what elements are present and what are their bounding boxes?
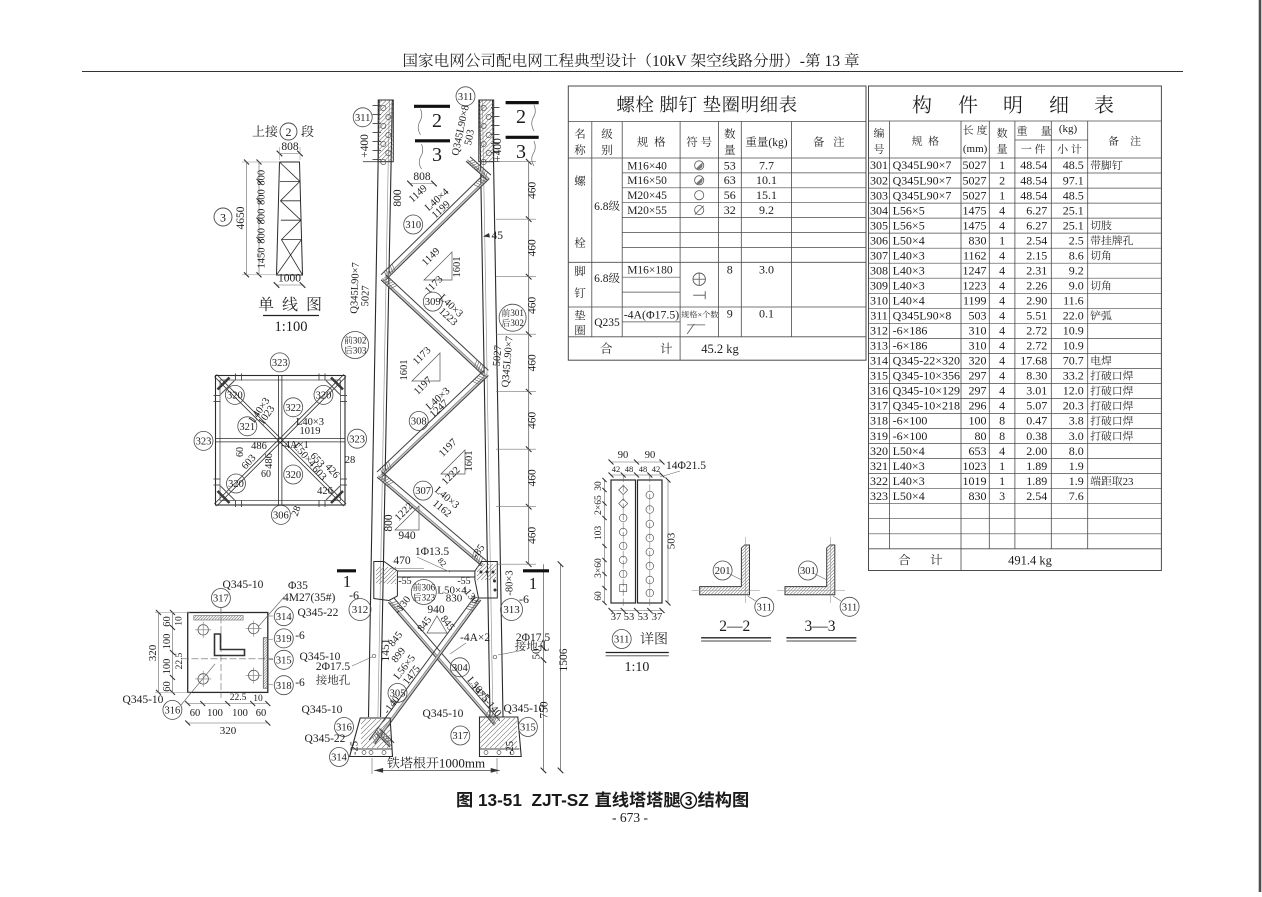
svg-text:11.6: 11.6 [1063,294,1084,308]
svg-text:311: 311 [842,602,857,613]
svg-text:6.27: 6.27 [1026,203,1047,217]
svg-text:53: 53 [638,612,649,623]
svg-text:28: 28 [345,455,356,466]
svg-text:8: 8 [999,429,1005,443]
svg-text:3.01: 3.01 [1026,384,1047,398]
svg-text:460: 460 [527,239,539,257]
svg-text:L40×3: L40×3 [893,279,925,293]
svg-text:1450: 1450 [257,248,268,269]
svg-text:323: 323 [272,358,288,369]
svg-text:318: 318 [870,414,888,428]
svg-text:322: 322 [870,474,888,488]
svg-text:3: 3 [999,489,1005,503]
svg-text:316: 316 [336,723,352,734]
svg-text:0.1: 0.1 [759,306,774,320]
svg-text:306: 306 [273,511,289,522]
svg-text:60: 60 [235,447,246,457]
svg-text:318: 318 [276,681,292,692]
svg-text:310: 310 [969,324,987,338]
svg-text:315: 315 [520,723,536,734]
svg-text:4: 4 [999,248,1005,262]
svg-text:830: 830 [446,593,463,605]
svg-text:302: 302 [510,318,524,328]
svg-text:56: 56 [724,188,736,202]
svg-text:460: 460 [527,527,539,545]
svg-text:303: 303 [353,346,367,356]
svg-text:9.2: 9.2 [759,203,774,217]
svg-text:1: 1 [999,459,1005,473]
svg-text:70.7: 70.7 [1063,354,1084,368]
svg-text:1.89: 1.89 [1026,459,1047,473]
svg-text:2—2: 2—2 [719,618,750,635]
svg-text:3—3: 3—3 [805,618,836,635]
svg-text:Q345-10: Q345-10 [300,651,341,663]
svg-text:9.0: 9.0 [1069,279,1084,293]
svg-text:32: 32 [724,203,736,217]
svg-text:L40×3: L40×3 [893,474,925,488]
svg-text:3: 3 [516,141,526,163]
svg-text:13-51 ZJT-SZ: 13-51 ZJT-SZ [473,790,593,810]
svg-text:310: 310 [405,220,421,231]
svg-text:4: 4 [999,203,1005,217]
svg-text:×: × [698,311,703,320]
svg-text:311: 311 [870,309,888,323]
svg-text:314: 314 [331,753,348,764]
svg-text:-: - [800,53,805,70]
svg-text:(kg): (kg) [768,137,787,149]
svg-text:830: 830 [969,233,987,247]
svg-text:60: 60 [162,681,173,692]
svg-text:320: 320 [870,444,888,458]
svg-text:48.5: 48.5 [1063,188,1084,202]
svg-text:1: 1 [999,233,1005,247]
svg-text:1475: 1475 [963,203,987,217]
svg-text:486: 486 [251,441,267,452]
svg-text:301: 301 [870,158,888,172]
svg-text:53: 53 [624,612,635,623]
svg-text:20.3: 20.3 [1063,399,1084,413]
svg-text:-6×186: -6×186 [893,339,928,353]
svg-text:9: 9 [727,306,733,320]
svg-text:Q345-22: Q345-22 [305,733,346,745]
svg-text:8: 8 [999,414,1005,428]
svg-text:307: 307 [870,248,888,262]
svg-text:460: 460 [527,182,539,200]
svg-text:-25: -25 [350,741,361,755]
svg-text:800: 800 [257,170,268,186]
svg-text:4: 4 [999,339,1005,353]
svg-text:10.1: 10.1 [756,173,777,187]
svg-text:322: 322 [285,403,301,414]
svg-text:10: 10 [175,616,185,626]
svg-text:4: 4 [999,279,1005,293]
svg-text:2.5: 2.5 [1069,233,1084,247]
svg-text:460: 460 [527,297,539,315]
svg-text:4: 4 [999,354,1005,368]
svg-text:2.54: 2.54 [1026,233,1047,247]
svg-text:460: 460 [527,412,539,430]
svg-text:301: 301 [800,566,816,577]
svg-text:6.8: 6.8 [594,201,609,213]
svg-text:1451: 1451 [380,638,392,661]
svg-text:1.89: 1.89 [1026,474,1047,488]
svg-text:4650: 4650 [235,206,247,229]
svg-text:4: 4 [999,263,1005,277]
svg-text:45.2 kg: 45.2 kg [701,342,739,356]
svg-text:313: 313 [870,339,888,353]
svg-text:312: 312 [870,324,888,338]
svg-text:1:10: 1:10 [625,660,650,675]
svg-text:Q345-10: Q345-10 [423,708,464,720]
svg-text:306: 306 [870,233,888,247]
svg-text:-6×100: -6×100 [893,429,928,443]
svg-text:1199: 1199 [963,294,987,308]
svg-text:304: 304 [870,203,888,217]
svg-text:320: 320 [220,725,237,737]
svg-text:Q345-10: Q345-10 [123,694,164,706]
svg-text:48.54: 48.54 [1020,158,1047,172]
svg-text:314: 314 [870,354,888,368]
svg-text:2: 2 [999,173,1005,187]
svg-text:1247: 1247 [963,263,987,277]
svg-text:309: 309 [870,279,888,293]
svg-text:426: 426 [317,486,333,497]
svg-text:Q345-10×356: Q345-10×356 [893,369,960,383]
svg-text:Q345L90×7: Q345L90×7 [893,158,952,172]
svg-text:8: 8 [727,263,733,277]
svg-text:306: 306 [422,583,436,593]
svg-text:2×65: 2×65 [594,495,604,515]
svg-text:3.0: 3.0 [759,263,774,277]
svg-text:460: 460 [527,469,539,487]
svg-text:312: 312 [352,604,369,616]
svg-text:10.9: 10.9 [1063,339,1084,353]
svg-text:317: 317 [213,594,229,605]
svg-text:9.2: 9.2 [1069,263,1084,277]
svg-text:296: 296 [969,399,987,413]
svg-text:491.4 kg: 491.4 kg [1008,553,1053,567]
svg-text:470: 470 [393,555,411,567]
svg-text:33.2: 33.2 [1063,369,1084,383]
svg-text:311: 311 [355,113,370,124]
svg-text:316: 316 [165,706,181,717]
svg-text:305: 305 [870,218,888,232]
svg-text:1162: 1162 [963,248,987,262]
svg-text:320: 320 [228,479,244,490]
svg-text:1.9: 1.9 [1069,474,1084,488]
svg-text:940: 940 [398,530,416,542]
svg-text:L40×4: L40×4 [893,294,925,308]
svg-text:503: 503 [666,532,678,549]
svg-text:317: 317 [870,399,888,413]
svg-text:0.38: 0.38 [1026,429,1047,443]
svg-text:53: 53 [724,158,736,172]
svg-text:1.9: 1.9 [1069,459,1084,473]
svg-text:302: 302 [870,173,888,187]
svg-text:23: 23 [1123,476,1134,488]
svg-text:10: 10 [253,694,263,704]
svg-text:17.68: 17.68 [1020,354,1047,368]
svg-text:297: 297 [969,384,987,398]
svg-text:100: 100 [162,659,173,675]
svg-text:2.90: 2.90 [1026,294,1047,308]
svg-text:Φ35: Φ35 [288,580,308,592]
svg-text:311: 311 [614,635,629,646]
svg-text:1:100: 1:100 [274,319,307,335]
svg-text:317: 317 [452,731,468,742]
svg-text:4: 4 [999,324,1005,338]
svg-text:319: 319 [870,429,888,443]
svg-text:15.1: 15.1 [756,188,777,202]
svg-text:L56×5: L56×5 [893,218,925,232]
svg-text:37: 37 [611,612,622,623]
svg-text:1475: 1475 [963,218,987,232]
svg-text:22.5: 22.5 [230,693,247,703]
svg-text:2.00: 2.00 [1026,444,1047,458]
svg-text:321: 321 [870,459,888,473]
svg-text:4: 4 [999,399,1005,413]
svg-text:-6: -6 [295,630,305,642]
svg-text:5.07: 5.07 [1026,399,1047,413]
svg-text:503: 503 [969,309,987,323]
svg-text:1601: 1601 [399,360,410,381]
svg-text:63: 63 [724,173,736,187]
svg-text:L56×5: L56×5 [893,203,925,217]
svg-text:60: 60 [162,616,173,627]
svg-text:3: 3 [220,211,226,225]
svg-text:48.54: 48.54 [1020,188,1047,202]
svg-text:48: 48 [625,464,634,474]
svg-text:486: 486 [264,453,275,469]
svg-text:3.8: 3.8 [1069,414,1084,428]
svg-text:3×60: 3×60 [594,558,604,578]
svg-text:2: 2 [516,106,526,128]
svg-text:308: 308 [870,263,888,277]
svg-text:M20×45: M20×45 [627,190,667,202]
svg-text:22.5: 22.5 [175,652,185,669]
svg-text:307: 307 [415,486,431,497]
svg-text:316: 316 [870,384,888,398]
svg-text:22.0: 22.0 [1063,309,1084,323]
svg-text:314: 314 [276,612,293,623]
svg-text:100: 100 [969,414,987,428]
svg-text:1: 1 [999,474,1005,488]
svg-text:100: 100 [207,708,223,719]
svg-text:830: 830 [969,489,987,503]
svg-text:4: 4 [999,384,1005,398]
svg-text:800: 800 [257,209,268,225]
svg-text:25.1: 25.1 [1063,218,1084,232]
svg-text:2.54: 2.54 [1026,489,1047,503]
svg-text:-55: -55 [398,576,411,587]
svg-text:-4A(Φ17.5): -4A(Φ17.5) [624,308,680,322]
svg-text:Q235: Q235 [594,317,620,329]
svg-text:7.6: 7.6 [1069,489,1084,503]
svg-text:4: 4 [999,369,1005,383]
svg-text:4: 4 [999,444,1005,458]
svg-text:297: 297 [969,369,987,383]
svg-text:460: 460 [527,354,539,372]
svg-text:Q345L90×8: Q345L90×8 [893,309,952,323]
svg-text:12.0: 12.0 [1063,384,1084,398]
svg-text:8.30: 8.30 [1026,369,1047,383]
svg-text:2.26: 2.26 [1026,279,1047,293]
svg-text:313: 313 [503,604,520,616]
svg-text:90: 90 [618,450,629,461]
svg-text:653: 653 [969,444,987,458]
svg-text:97.1: 97.1 [1063,173,1084,187]
svg-text:304: 304 [452,663,469,674]
svg-text:10kV: 10kV [652,53,690,70]
svg-text:80: 80 [975,429,987,443]
svg-text:L40×3: L40×3 [893,248,925,262]
svg-text:+400: +400 [359,134,371,158]
svg-text:1019: 1019 [963,474,987,488]
svg-text:M16×180: M16×180 [627,265,673,277]
svg-text:90: 90 [645,450,656,461]
svg-text:5027: 5027 [963,158,987,172]
svg-text:48.54: 48.54 [1020,173,1047,187]
svg-text:-6×100: -6×100 [893,414,928,428]
svg-text:L50×4: L50×4 [893,233,925,247]
svg-text:808: 808 [413,171,431,183]
svg-text:60: 60 [594,591,604,601]
svg-text:4: 4 [999,218,1005,232]
svg-text:Q345-10: Q345-10 [223,579,264,591]
svg-text:Q345-10: Q345-10 [504,703,545,715]
svg-text:1: 1 [529,574,538,593]
svg-text:L50×4: L50×4 [893,489,925,503]
svg-text:100: 100 [232,708,248,719]
svg-text:0.47: 0.47 [1026,414,1047,428]
svg-text:- 673 -: - 673 - [612,810,648,825]
svg-text:L50×4: L50×4 [893,444,925,458]
svg-text:-6: -6 [295,677,305,689]
svg-text:323: 323 [870,489,888,503]
svg-text:1601: 1601 [452,257,463,278]
svg-text:800: 800 [392,189,404,207]
svg-text:1000: 1000 [278,273,301,285]
svg-text:M16×40: M16×40 [627,160,667,172]
svg-text:4: 4 [999,294,1005,308]
svg-text:2.31: 2.31 [1026,263,1047,277]
svg-text:(kg): (kg) [1059,123,1078,135]
svg-text:4: 4 [999,309,1005,323]
svg-text:13: 13 [821,53,844,70]
svg-text:6.27: 6.27 [1026,218,1047,232]
svg-text:2.72: 2.72 [1026,339,1047,353]
svg-text:319: 319 [276,634,292,645]
svg-text:315: 315 [276,655,292,666]
svg-text:315: 315 [870,369,888,383]
svg-text:Q345-10: Q345-10 [302,704,343,716]
svg-text:2.72: 2.72 [1026,324,1047,338]
svg-text:2: 2 [286,125,292,139]
svg-text:Q345-22×320: Q345-22×320 [893,354,960,368]
svg-text:Q345L90×7: Q345L90×7 [893,173,952,187]
svg-text:M16×50: M16×50 [627,175,667,187]
svg-text:Q345-22: Q345-22 [298,607,339,619]
svg-text:42: 42 [612,464,621,474]
svg-text:8.6: 8.6 [1069,248,1084,262]
svg-text:940: 940 [427,604,445,616]
svg-text:42: 42 [652,464,661,474]
svg-text:Q345-10×218: Q345-10×218 [893,399,960,413]
svg-text:60: 60 [256,708,267,719]
svg-text:1019: 1019 [300,426,321,437]
svg-text:-80×3: -80×3 [505,570,516,595]
svg-text:201: 201 [715,566,731,577]
svg-text:25.1: 25.1 [1063,203,1084,217]
svg-text:800: 800 [257,228,268,244]
svg-text:5027: 5027 [360,285,372,306]
svg-text:2.15: 2.15 [1026,248,1047,262]
svg-text:-25: -25 [505,741,516,755]
svg-text:3: 3 [432,144,442,166]
svg-text:5027: 5027 [963,188,987,202]
svg-text:308: 308 [411,417,427,428]
svg-text:303: 303 [870,188,888,202]
svg-text:320: 320 [227,391,243,402]
svg-text:M20×55: M20×55 [627,205,667,217]
svg-text:3: 3 [685,794,693,809]
svg-text:Q345L90×7: Q345L90×7 [893,188,952,202]
svg-text:311: 311 [458,92,473,103]
svg-text:1506: 1506 [558,648,570,671]
svg-text:1601: 1601 [464,451,475,472]
svg-text:6.8: 6.8 [594,273,609,285]
svg-text:60: 60 [190,708,201,719]
svg-text:301: 301 [510,308,524,318]
svg-text:(mm): (mm) [963,143,988,155]
svg-text:800: 800 [257,189,268,205]
svg-text:320: 320 [285,470,301,481]
svg-text:5027: 5027 [963,173,987,187]
svg-text:1000mm: 1000mm [439,756,485,771]
svg-text:310: 310 [870,294,888,308]
svg-text:L40×3: L40×3 [893,459,925,473]
svg-text:-6×186: -6×186 [893,324,928,338]
svg-text:320: 320 [316,391,332,402]
svg-text:302: 302 [353,336,367,346]
svg-text:-4A×2: -4A×2 [460,632,490,644]
svg-text:45: 45 [492,230,504,242]
svg-text:Q345-10×129: Q345-10×129 [893,384,960,398]
svg-text:311: 311 [757,602,772,613]
svg-text:323: 323 [349,434,365,445]
svg-text:323: 323 [422,593,436,603]
svg-text:5.51: 5.51 [1026,309,1047,323]
svg-text:10.9: 10.9 [1063,324,1084,338]
svg-text:37: 37 [652,612,663,623]
svg-text:30: 30 [594,481,604,491]
svg-text:L40×3: L40×3 [893,263,925,277]
svg-text:48.5: 48.5 [1063,158,1084,172]
svg-text:310: 310 [969,339,987,353]
svg-text:1: 1 [999,188,1005,202]
svg-text:320: 320 [147,644,159,661]
svg-text:2: 2 [432,110,442,132]
svg-text:1223: 1223 [963,279,987,293]
svg-text:60: 60 [261,469,271,480]
svg-text:3.0: 3.0 [1069,429,1084,443]
svg-text:+400: +400 [492,138,504,162]
svg-text:808: 808 [281,141,299,153]
svg-text:7.7: 7.7 [759,158,774,172]
svg-text:103: 103 [594,526,604,541]
svg-text:4M27(35#): 4M27(35#) [283,592,336,604]
svg-text:5027: 5027 [492,345,505,367]
